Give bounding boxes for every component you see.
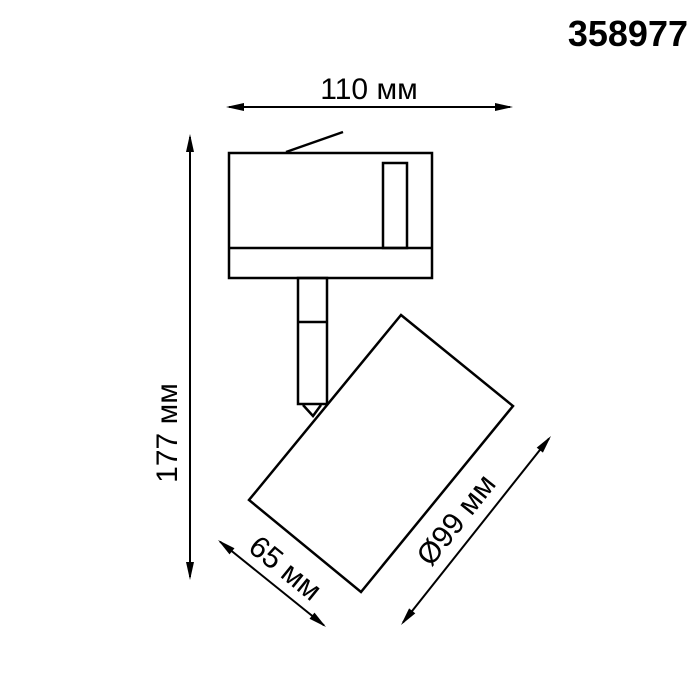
track-adapter xyxy=(229,132,432,278)
track-adapter-body xyxy=(229,153,432,278)
product-code: 358977 xyxy=(568,13,688,54)
stem xyxy=(298,278,327,416)
dim-width-label: 110 мм xyxy=(320,73,417,106)
dim-head-diameter-line xyxy=(403,439,549,623)
dim-height: 177 мм xyxy=(151,134,194,580)
arrowhead-right-icon xyxy=(495,103,513,111)
arrowhead-up-icon xyxy=(186,134,194,152)
dim-width: 110 мм xyxy=(226,73,513,111)
track-adapter-slot xyxy=(383,163,407,248)
dim-height-label: 177 мм xyxy=(151,383,184,483)
stem-body xyxy=(298,278,327,404)
arrowhead-down-icon xyxy=(186,562,194,580)
dim-head-width: 65 мм xyxy=(218,530,328,627)
technical-drawing: 358977 110 мм 177 мм 65 мм xyxy=(0,0,700,700)
dim-head-diameter: Ø99 мм xyxy=(401,436,551,625)
track-adapter-lever xyxy=(286,132,343,152)
arrowhead-left-icon xyxy=(226,103,244,111)
dim-head-width-label: 65 мм xyxy=(242,530,327,608)
